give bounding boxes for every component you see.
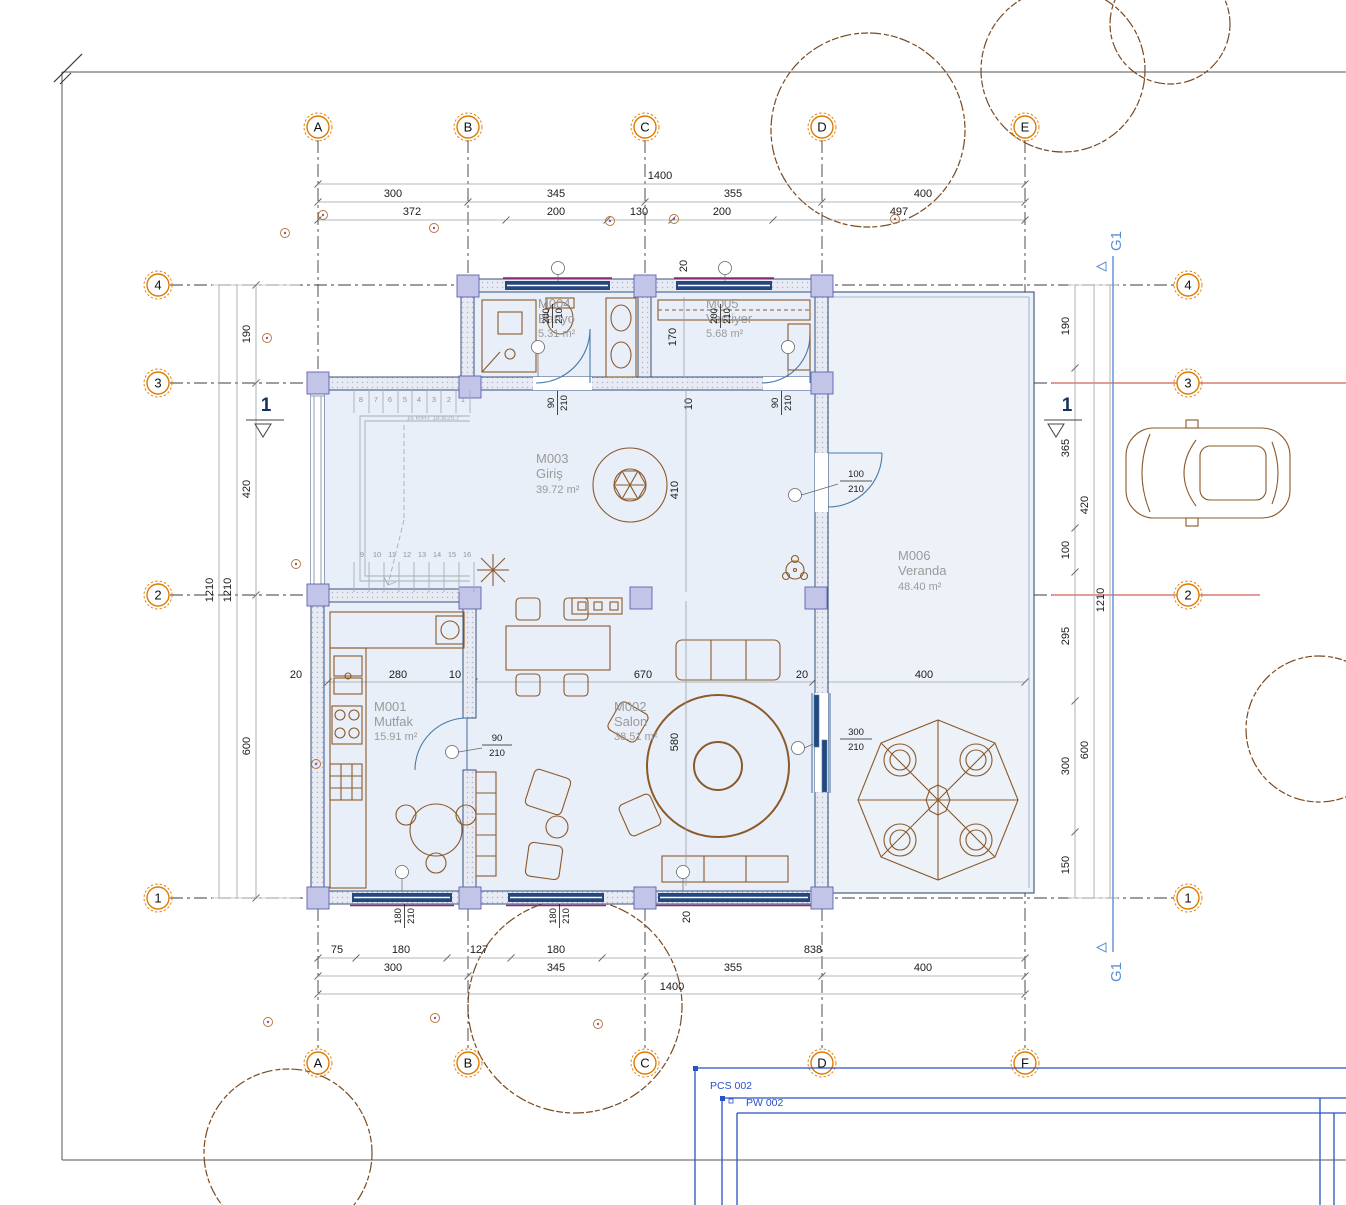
svg-text:4: 4 [417,395,421,404]
dim: 300 [384,188,402,200]
dim: 100 [1060,541,1072,559]
dim-total-top: 1400 [648,170,672,182]
grid-bubble: 1 [144,884,172,912]
tree-icon [204,1069,372,1205]
grid-label: 3 [154,376,161,391]
svg-text:5: 5 [403,395,407,404]
dim: 300 [384,962,402,974]
grid-label: 4 [1184,278,1191,293]
dim: 127 [470,944,488,956]
tree-icon [1246,656,1346,802]
dim: 600 [1079,741,1091,759]
corner-pen-mark-icon [54,54,82,84]
dim: 345 [547,962,565,974]
section-marker-left: 1 [246,395,284,437]
svg-text:15: 15 [448,550,456,559]
svg-text:8: 8 [359,395,363,404]
pcs-label: PCS 002 [710,1080,752,1092]
dim: 190 [241,325,253,343]
svg-text:14: 14 [433,550,441,559]
svg-text:5.31 m²: 5.31 m² [538,328,576,340]
grid-bubble: B [454,113,482,141]
dim: 1210 [1095,588,1107,612]
dim: 355 [724,188,742,200]
svg-text:200: 200 [709,308,720,324]
dim: 400 [915,669,933,681]
svg-text:12: 12 [403,550,411,559]
dim: 180 [547,944,565,956]
svg-text:3: 3 [432,395,436,404]
grid-bubble: 4 [144,271,172,299]
grid-label: D [817,120,826,135]
svg-text:210: 210 [406,908,417,924]
grid-bubble: 2 [144,581,172,609]
car-symbol [1126,420,1290,526]
dim: 580 [669,733,681,751]
svg-text:90: 90 [492,733,503,744]
dim: 355 [724,962,742,974]
dimensions-top: 1400 300 345 355 400 372 200 130 200 497… [315,170,1029,272]
dim: 345 [547,188,565,200]
grid-bubble: A [304,1049,332,1077]
dim: 400 [914,962,932,974]
dim: 1210 [204,578,216,602]
svg-text:1: 1 [261,395,272,416]
grid-bubble: D [808,1049,836,1077]
svg-text:210: 210 [554,308,565,324]
svg-text:13: 13 [418,550,426,559]
svg-text:200: 200 [541,308,552,324]
dim: 200 [713,206,731,218]
grid-label: 1 [154,891,161,906]
dim: 170 [667,328,679,346]
dim: 20 [290,669,302,681]
svg-text:M001: M001 [374,699,407,714]
grid-label: A [314,120,323,135]
svg-text:10: 10 [373,550,381,559]
svg-text:M003: M003 [536,451,569,466]
dim: 190 [1060,317,1072,335]
svg-text:210: 210 [722,308,733,324]
svg-text:90: 90 [770,398,781,409]
grid-label: 2 [154,588,161,603]
svg-text:M002: M002 [614,699,647,714]
svg-text:300: 300 [848,727,864,738]
grid-bubble: 4 [1174,271,1202,299]
utility-frames: PCS 002 PW 002 [693,1066,1346,1205]
dim: 670 [634,669,652,681]
grid-label: 2 [1184,588,1191,603]
grid-label: A [314,1056,323,1071]
dimensions-right: 190 365 100 295 300 150 420 600 1210 [1060,285,1118,898]
grid-bubble: 3 [1174,369,1202,397]
svg-text:11: 11 [388,550,396,559]
label-window-south-2: 180210 [548,904,572,928]
svg-text:210: 210 [848,484,864,495]
g1-label-top: G1 [1108,231,1125,251]
svg-text:210: 210 [561,908,572,924]
grid-bubble: 2 [1174,581,1202,609]
tree-icon [981,0,1145,152]
dim: 75 [331,944,343,956]
svg-text:180: 180 [393,908,404,924]
red-reference-lines [1052,383,1346,595]
dim: 20 [681,911,693,923]
dim: 10 [449,669,461,681]
grid-bubble: 1 [1174,884,1202,912]
dim: 600 [241,737,253,755]
dim: 420 [1079,496,1091,514]
svg-text:16: 16 [463,550,471,559]
dim: 372 [403,206,421,218]
svg-text:180: 180 [548,908,559,924]
grid-bubble: A [304,113,332,141]
svg-text:90: 90 [546,398,557,409]
dim: 410 [669,481,681,499]
dimensions-bottom: 75 180 127 180 838 300 345 355 400 1400 … [315,911,1029,998]
grid-bubble: D [808,113,836,141]
svg-text:15.91 m²: 15.91 m² [374,731,418,743]
svg-text:Giriş: Giriş [536,466,563,481]
svg-text:7: 7 [374,395,378,404]
svg-text:M006: M006 [898,548,931,563]
svg-text:1: 1 [1062,395,1073,416]
dim: 10 [683,398,695,410]
svg-text:5.68 m²: 5.68 m² [706,328,744,340]
dim: 200 [547,206,565,218]
dim: 280 [389,669,407,681]
tree-icon [1110,0,1230,84]
dim: 295 [1060,627,1072,645]
svg-text:Salon: Salon [614,714,647,729]
furniture-veranda [858,720,1018,880]
grid-bubble: E [1011,113,1039,141]
grid-label: 1 [1184,891,1191,906]
tree-icon [468,899,682,1113]
dim: 150 [1060,856,1072,874]
dim: 400 [914,188,932,200]
dim: 365 [1060,439,1072,457]
svg-text:210: 210 [559,395,570,411]
dim: 20 [678,260,690,272]
grid-bubble: C [631,1049,659,1077]
grid-label: B [464,1056,473,1071]
svg-text:39.72 m²: 39.72 m² [536,484,580,496]
grid-label: E [1021,120,1030,135]
svg-text:Veranda: Veranda [898,563,947,578]
dimensions-left: 190 420 600 1210 1210 [204,282,300,902]
svg-text:100: 100 [848,469,864,480]
g1-label-bottom: G1 [1108,962,1125,982]
grid-bubble: F [1011,1049,1039,1077]
plant-icon [477,554,509,586]
dim: 420 [241,480,253,498]
floor-plan-canvas: A B C D E A B C D F 4 3 2 1 4 3 2 1 1400… [0,0,1346,1205]
grid-bubble: 3 [144,369,172,397]
grid-label: 4 [154,278,161,293]
svg-text:6: 6 [388,395,392,404]
dim: 838 [804,944,822,956]
grid-label: 3 [1184,376,1191,391]
label-window-south-1: 180210 [393,904,417,928]
dim: 1210 [222,578,234,602]
svg-text:1: 1 [461,395,465,404]
dim: 130 [630,206,648,218]
svg-text:9: 9 [360,550,364,559]
drawing-sheet: A B C D E A B C D F 4 3 2 1 4 3 2 1 1400… [0,0,1346,1205]
section-marker-right: 1 [1044,395,1082,437]
grid-bubble: C [631,113,659,141]
svg-text:210: 210 [489,748,505,759]
grid-label: C [640,1056,649,1071]
pw-label: PW 002 [746,1097,784,1109]
svg-text:38.51 m²: 38.51 m² [614,731,658,743]
svg-text:48.40 m²: 48.40 m² [898,581,942,593]
svg-text:210: 210 [783,395,794,411]
dim: 300 [1060,757,1072,775]
dim-total-bottom: 1400 [660,981,684,993]
grid-label: C [640,120,649,135]
dim: 180 [392,944,410,956]
svg-text:210: 210 [848,742,864,753]
tree-icon [771,33,965,227]
dim: 20 [796,669,808,681]
grid-label: B [464,120,473,135]
svg-text:Mutfak: Mutfak [374,714,414,729]
svg-text:2: 2 [447,395,451,404]
grid-bubble: B [454,1049,482,1077]
